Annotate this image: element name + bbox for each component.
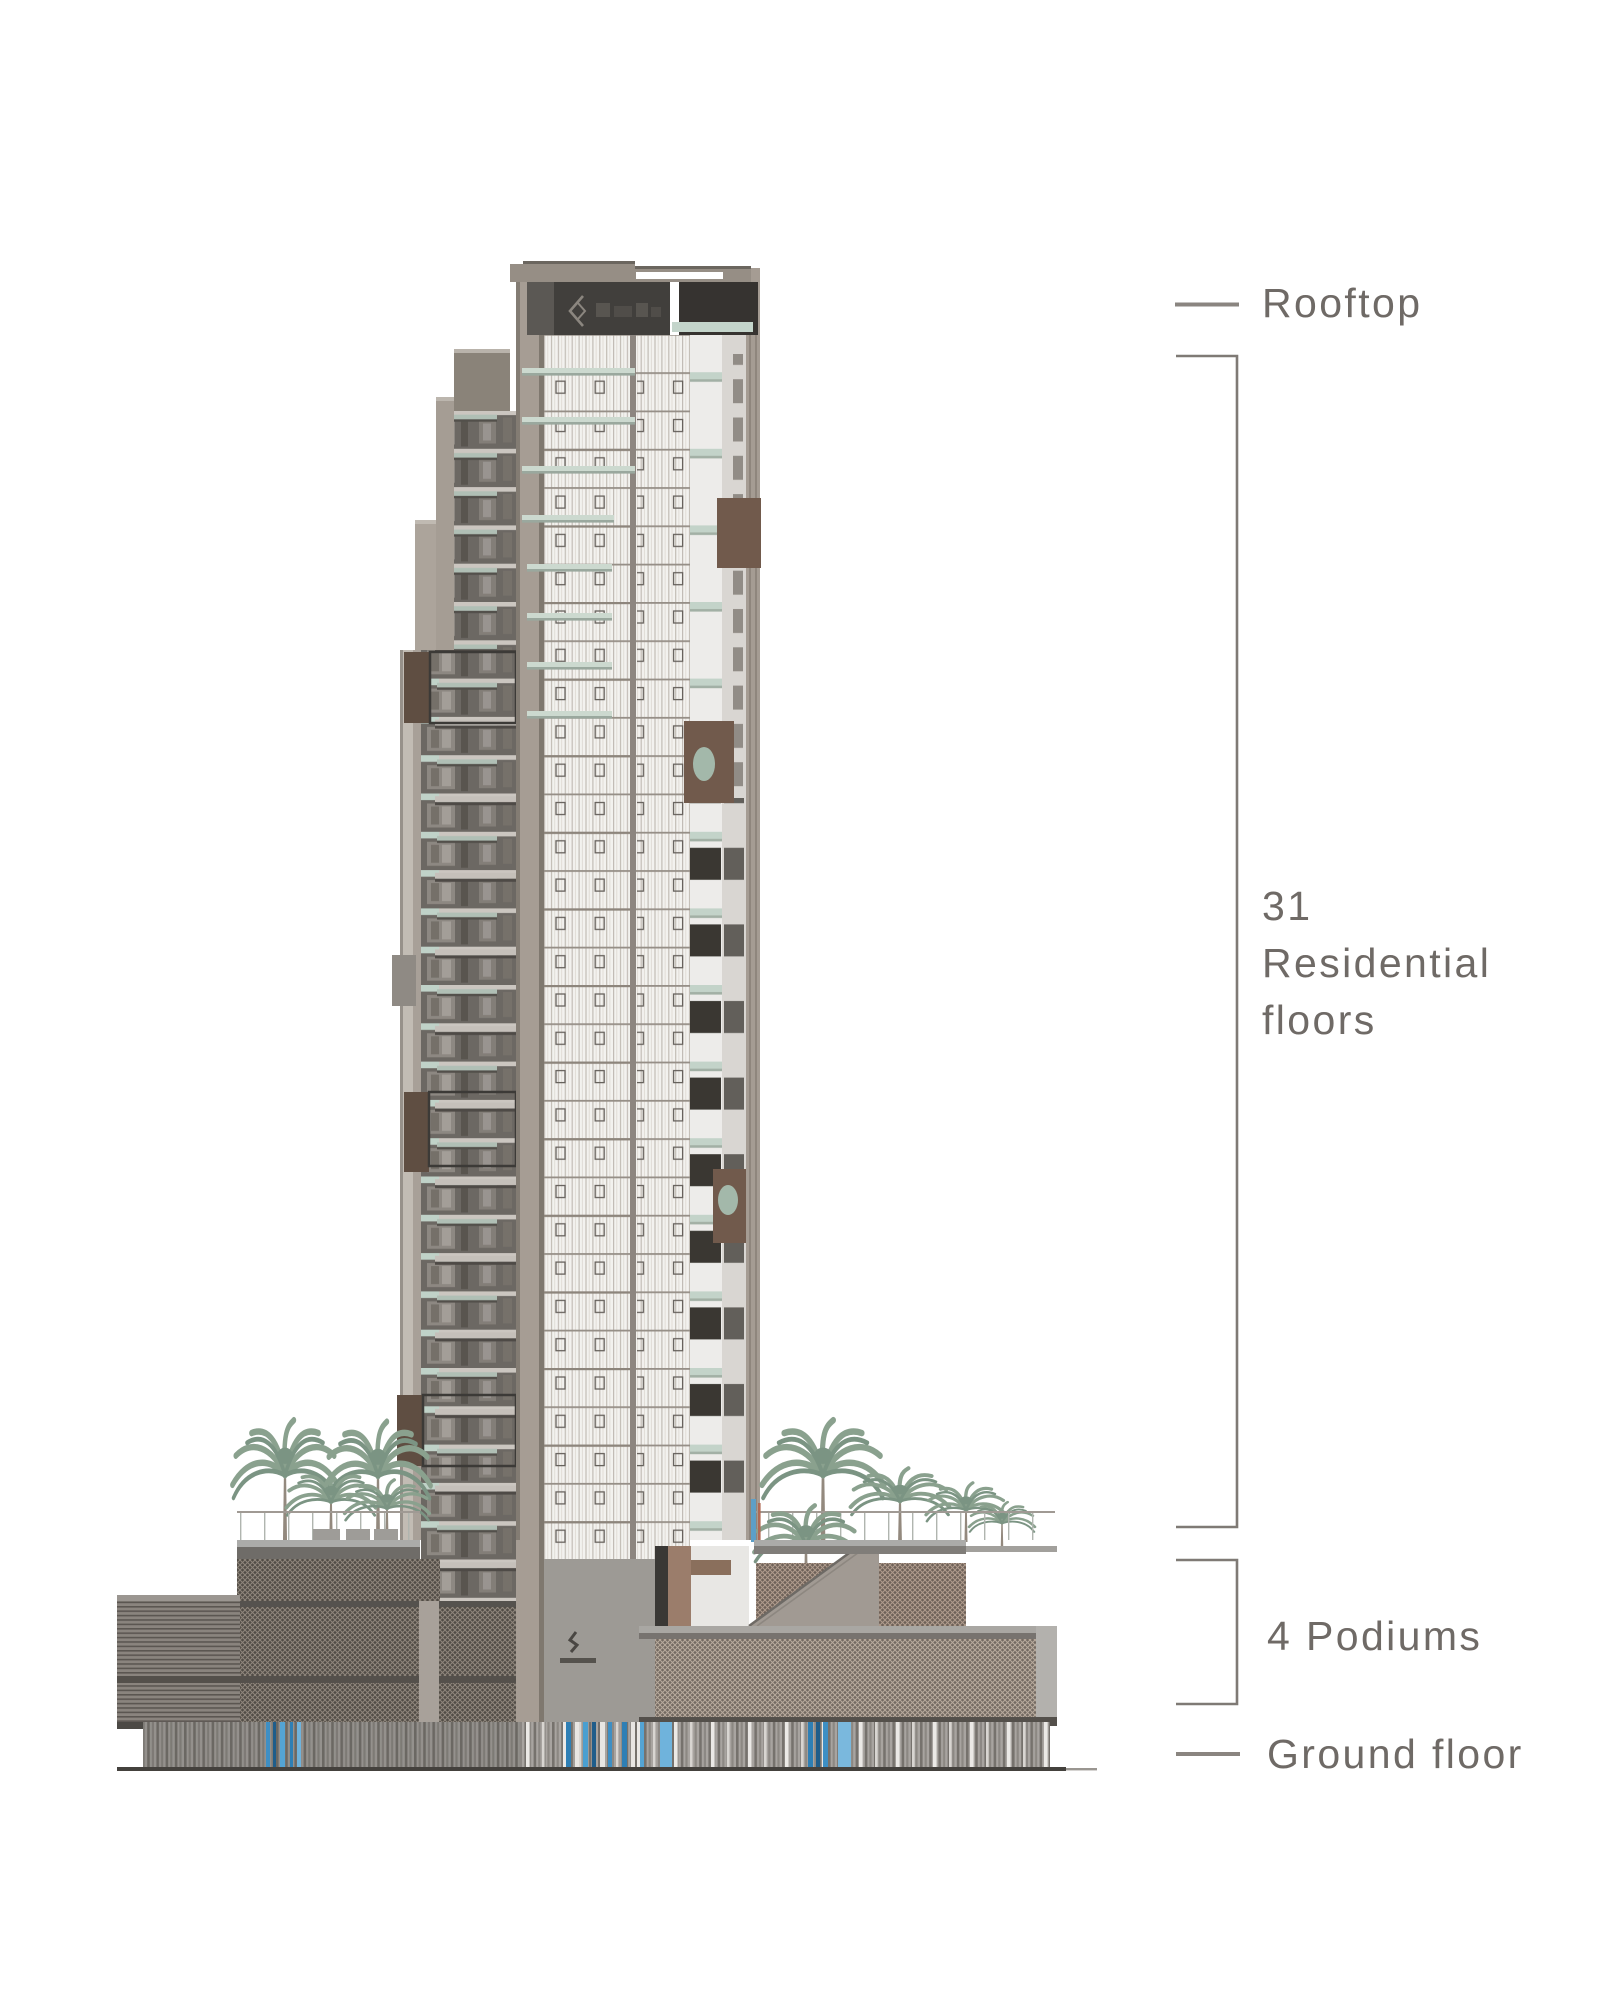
svg-text:Ground floor: Ground floor: [1267, 1731, 1524, 1777]
svg-text:Residential: Residential: [1262, 940, 1491, 986]
svg-text:Rooftop: Rooftop: [1262, 280, 1422, 326]
svg-text:4 Podiums: 4 Podiums: [1267, 1613, 1482, 1659]
svg-text:31: 31: [1262, 883, 1312, 929]
svg-text:floors: floors: [1262, 997, 1377, 1043]
